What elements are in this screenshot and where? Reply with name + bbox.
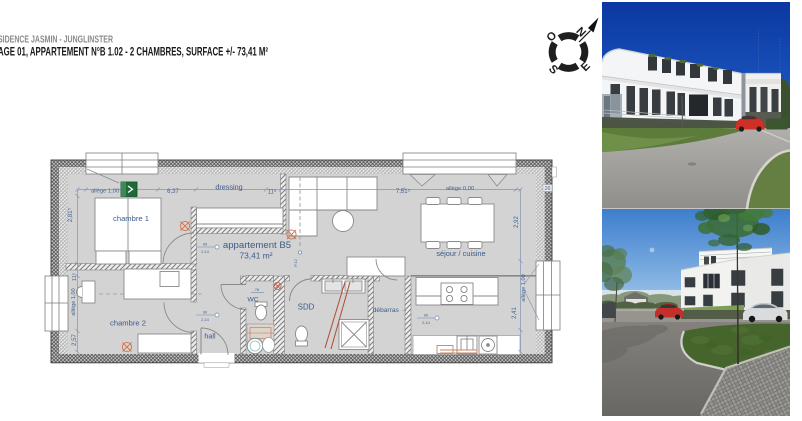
- svg-text:26: 26: [545, 186, 551, 192]
- svg-text:90: 90: [424, 313, 429, 318]
- svg-text:séjour / cuisine: séjour / cuisine: [436, 249, 485, 258]
- svg-text:allège 0,00: allège 0,00: [446, 186, 474, 192]
- svg-text:appartement B5: appartement B5: [223, 240, 291, 251]
- svg-text:allège 1,00: allège 1,00: [91, 189, 119, 195]
- svg-text:2,14: 2,14: [422, 320, 431, 325]
- svg-text:11⁵: 11⁵: [268, 188, 277, 195]
- svg-text:dressing: dressing: [215, 183, 242, 192]
- svg-text:débarras →: débarras →: [373, 307, 407, 314]
- svg-text:76: 76: [255, 287, 260, 292]
- svg-text:11⁵: 11⁵: [71, 273, 78, 281]
- svg-text:2,14: 2,14: [201, 249, 210, 254]
- svg-text:WC: WC: [247, 297, 258, 304]
- svg-text:AGE 01, APPARTEMENT N°B 1.02 -: AGE 01, APPARTEMENT N°B 1.02 - 2 CHAMBRE…: [0, 45, 268, 59]
- svg-text:90: 90: [203, 242, 208, 247]
- svg-text:hall: hall: [204, 332, 216, 341]
- svg-text:SDD: SDD: [298, 303, 315, 312]
- svg-text:2,92: 2,92: [514, 216, 520, 228]
- svg-text:S: S: [546, 63, 560, 77]
- svg-text:P.12: P.12: [293, 258, 298, 266]
- svg-text:chambre 1: chambre 1: [113, 214, 149, 223]
- svg-text:O: O: [545, 30, 560, 45]
- svg-text:7,51⁵: 7,51⁵: [396, 188, 411, 195]
- svg-text:90: 90: [203, 310, 208, 315]
- svg-text:2,41: 2,41: [512, 307, 518, 319]
- svg-text:2,81⁵: 2,81⁵: [67, 207, 74, 222]
- svg-text:chambre 2: chambre 2: [110, 319, 146, 328]
- svg-text:allège 1,00: allège 1,00: [71, 288, 77, 315]
- svg-text:73,41 m²: 73,41 m²: [239, 251, 272, 261]
- svg-text:E: E: [579, 60, 593, 74]
- svg-text:allège 1,00: allège 1,00: [521, 274, 527, 301]
- svg-text:2,14: 2,14: [201, 317, 210, 322]
- svg-text:2,57: 2,57: [72, 334, 78, 346]
- svg-text:6,37: 6,37: [167, 189, 179, 195]
